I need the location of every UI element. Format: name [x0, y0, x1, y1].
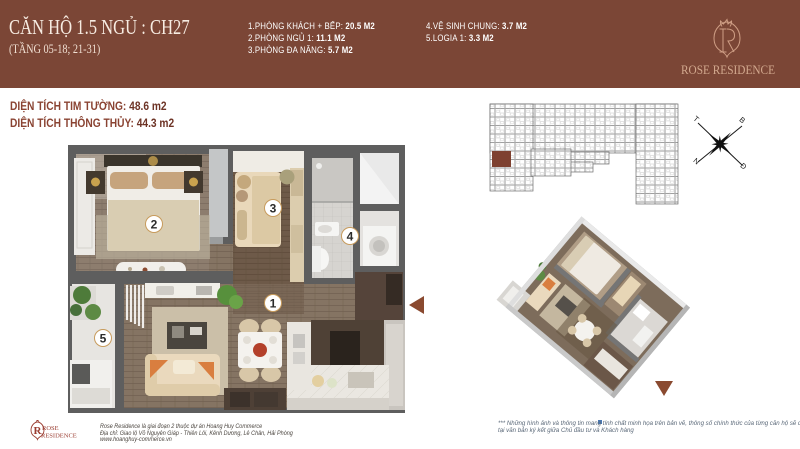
- svg-text:N: N: [691, 156, 701, 166]
- svg-text:RESIDENCE: RESIDENCE: [41, 433, 77, 440]
- svg-text:2: 2: [151, 218, 158, 232]
- svg-text:4: 4: [347, 230, 354, 244]
- svg-text:5: 5: [100, 332, 107, 346]
- svg-text:ROSE: ROSE: [42, 425, 59, 432]
- svg-text:3: 3: [270, 202, 277, 216]
- svg-text:T: T: [691, 114, 701, 124]
- svg-text:B: B: [737, 115, 747, 125]
- svg-text:ROSE RESIDENCE: ROSE RESIDENCE: [681, 63, 775, 77]
- svg-text:1: 1: [270, 297, 277, 311]
